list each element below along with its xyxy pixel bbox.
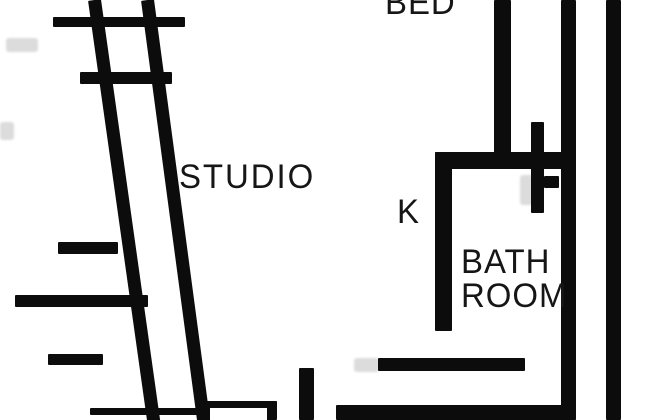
edge-artifact-top xyxy=(6,38,38,52)
room-label-kitchen: K xyxy=(397,195,420,229)
floor-plan: BED STUDIO K BATH ROOM xyxy=(0,0,650,420)
window-wall-inner-diagonal xyxy=(141,0,210,420)
bathroom-left-wall xyxy=(435,152,452,331)
window-wall-mid-ledge xyxy=(15,295,148,307)
entry-stub xyxy=(299,368,314,420)
room-label-studio: STUDIO xyxy=(179,160,315,194)
window-wall-top-ledge xyxy=(53,17,185,27)
edge-artifact-left xyxy=(0,122,14,140)
window-mullion-3 xyxy=(48,354,103,365)
bottom-wall-right xyxy=(336,405,576,420)
room-label-bathroom-line2: ROOM xyxy=(461,279,567,313)
right-inner-wall xyxy=(561,0,576,420)
right-outer-wall xyxy=(606,0,621,420)
window-mullion-2 xyxy=(58,242,118,254)
bathroom-bottom-wall xyxy=(378,358,525,371)
bottom-door-marker xyxy=(200,401,277,420)
room-label-bathroom-line1: BATH xyxy=(461,245,550,279)
bed-partition-wall xyxy=(494,0,511,168)
room-label-bed: BED xyxy=(385,0,456,20)
plumbing-tick xyxy=(544,176,559,188)
wall-shadow-bath xyxy=(354,358,379,372)
